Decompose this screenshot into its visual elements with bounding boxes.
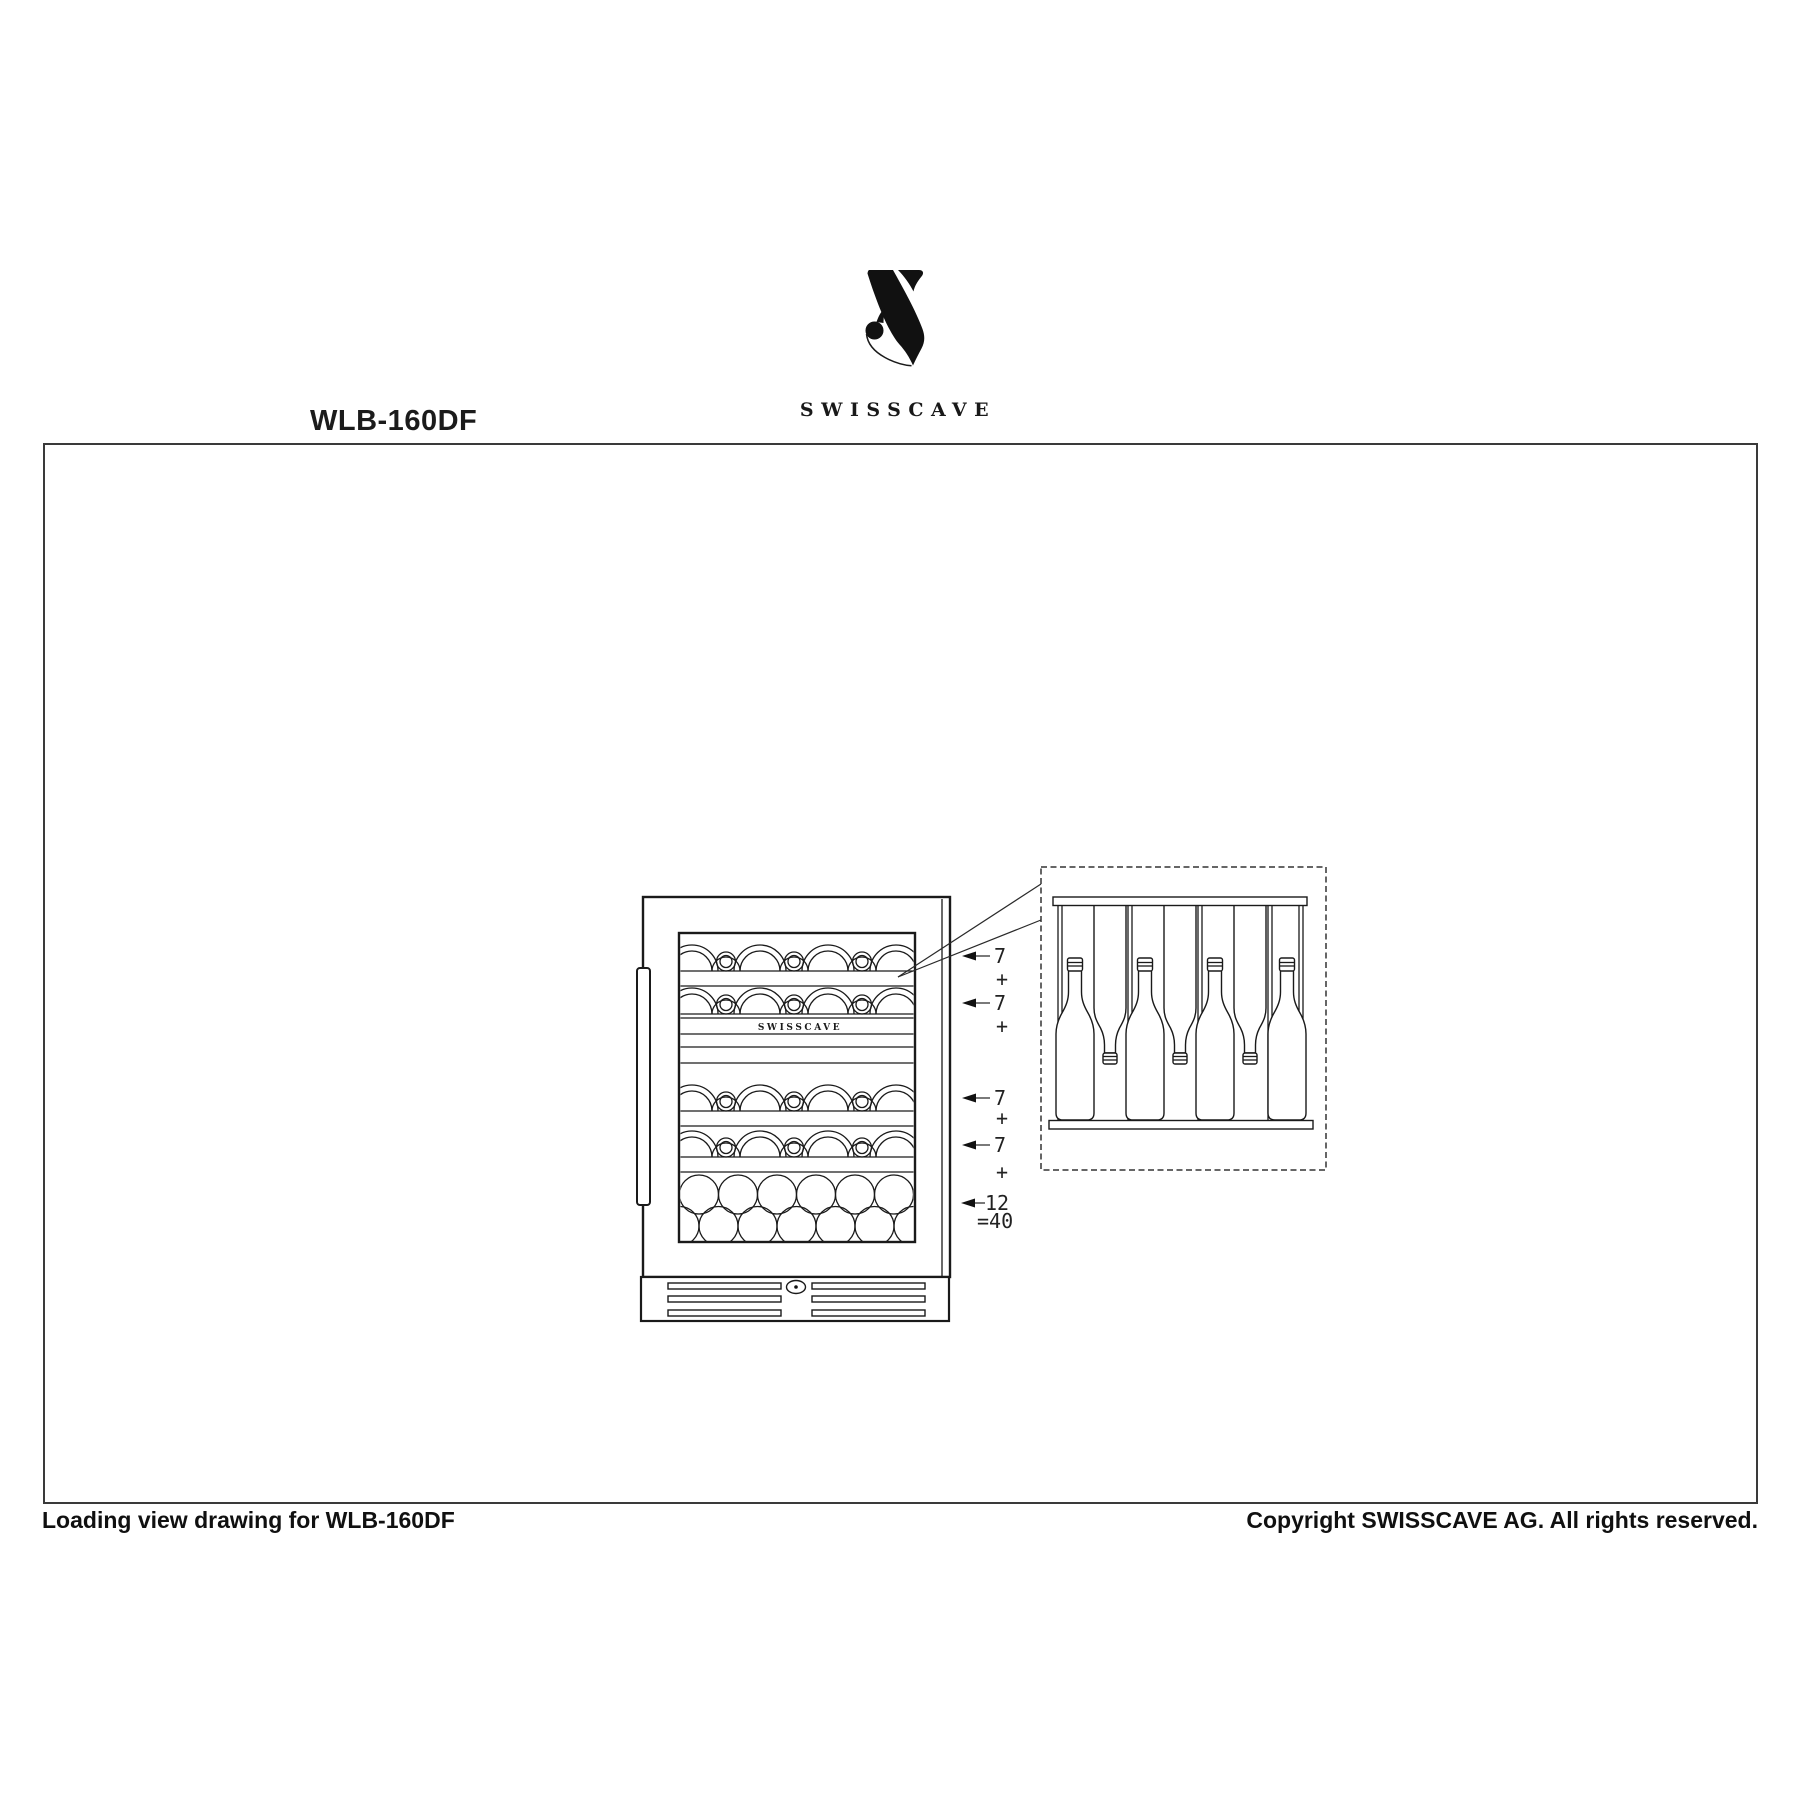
vent-lock [787,1281,806,1294]
capacity-plus: + [996,967,1008,991]
brand-logo-monogram [866,270,925,366]
capacity-count-row1: 7 [994,944,1006,968]
capacity-plus: + [996,1014,1008,1038]
footer-copyright-text: Copyright SWISSCAVE AG. All rights reser… [1246,1507,1758,1534]
cooler-front-view: SWISSCAVE [637,897,950,1321]
capacity-plus: + [996,1106,1008,1130]
capacity-annotations: 7 + 7 + 7 + 7 + 12 =40 [961,944,1013,1233]
capacity-plus: + [996,1160,1008,1184]
vent-grille [641,1277,949,1321]
footer-status-text: Loading view drawing for WLB-160DF [42,1507,455,1534]
capacity-count-row4: 7 [994,1133,1006,1157]
door-brand-label: SWISSCAVE [758,1023,842,1033]
page-canvas: WLB-160DF SWISSCAVE [0,0,1800,1800]
capacity-count-row2: 7 [994,991,1006,1015]
detail-view [1041,867,1326,1170]
capacity-total: =40 [977,1209,1013,1233]
cooler-door-handle [637,968,650,1205]
detail-shelf-side-view [1049,897,1313,1129]
arrow-heads [961,952,976,1208]
